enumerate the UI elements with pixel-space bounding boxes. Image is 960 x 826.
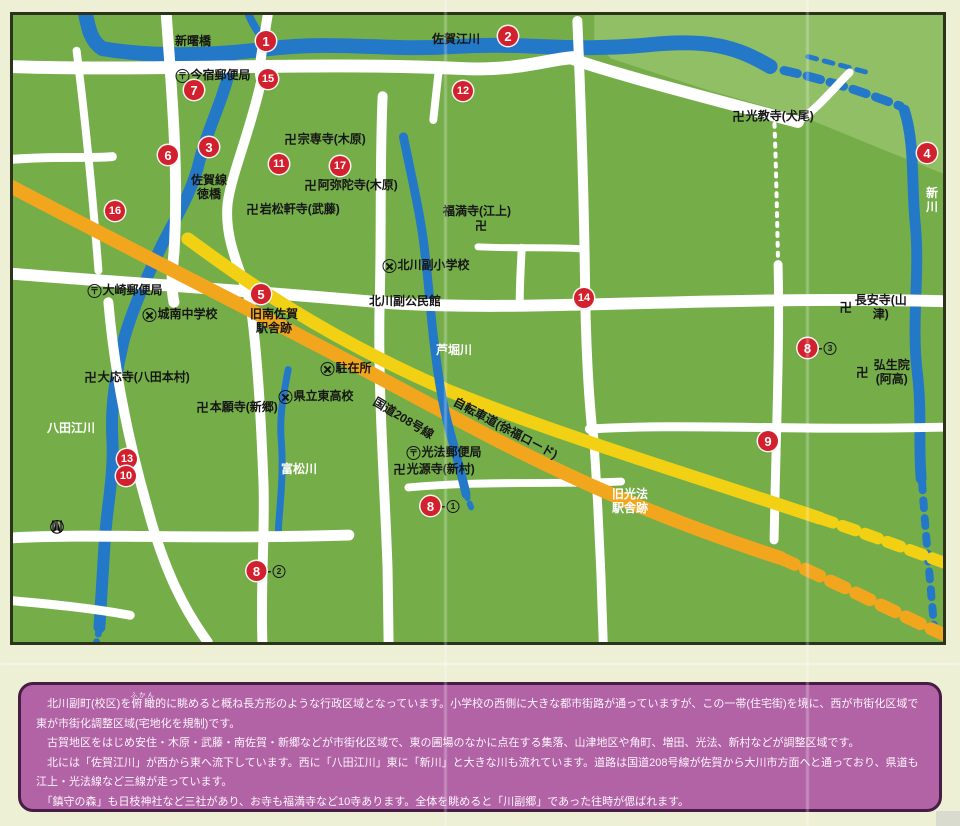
post-office-icon: 〒: [87, 284, 101, 298]
marker-suffix-number: 2: [273, 565, 286, 578]
map-label: 八田江川: [47, 422, 95, 436]
map-marker-16: 16: [105, 201, 125, 221]
map-label-text: 福満寺(江上): [443, 205, 511, 219]
marker-number: 8: [247, 561, 267, 581]
map-label-text: 県立東高校: [293, 390, 353, 404]
map-label: 〒光法郵便局: [406, 446, 481, 460]
marker-suffix-number: 1: [447, 500, 460, 513]
temple-icon: 卍: [246, 203, 259, 217]
marker-number: 8: [421, 496, 441, 516]
marker-number: 10: [116, 466, 136, 486]
map-label-text: 光教寺(犬尾): [746, 110, 814, 124]
post-office-icon: 〒: [406, 446, 420, 460]
marker-number: 3: [199, 137, 219, 157]
map-label: 城南中学校: [142, 308, 217, 322]
marker-number: 8: [798, 338, 818, 358]
map-marker-10: 10: [116, 466, 136, 486]
map-label-text: 光法郵便局: [421, 446, 481, 460]
map-label: 卍大応寺(八田本村): [84, 371, 190, 385]
marker-number: 7: [184, 80, 204, 100]
map-label-text: 旧光法 駅舎跡: [612, 488, 648, 516]
map-marker-7: 7: [184, 80, 204, 100]
map-label-text: 新曙橋: [175, 35, 211, 49]
map-label: 卍光教寺(犬尾): [732, 110, 814, 124]
paragraph-rivers-roads: 北には「佐賀江川」が西から東へ流下しています。西に「八田江川」東に「新川」と大き…: [36, 754, 924, 793]
scan-corner-artifact: [936, 811, 960, 826]
map-marker-12: 12: [453, 81, 473, 101]
paragraph-districts: 古賀地区をはじめ安住・木原・武藤・南佐賀・新郷などが市街化区域で、東の圃場のなか…: [36, 734, 924, 754]
map-label-text: 佐賀線 徳橋: [191, 174, 227, 202]
route-208-dashes: [780, 558, 943, 637]
marker-suffix: -1: [442, 499, 460, 513]
school-icon: [320, 362, 334, 376]
map-label-text: 岩松軒寺(武藤): [260, 203, 340, 217]
temple-icon: 卍: [84, 371, 97, 385]
map-label: 〒大崎郵便局: [87, 284, 162, 298]
map-label-text: 北川副公民館: [369, 295, 441, 309]
map-label-text: 城南中学校: [157, 308, 217, 322]
map-label: 旧光法 駅舎跡: [612, 488, 648, 516]
map-marker-3: 3: [199, 137, 219, 157]
map-marker-8-2: 8-2: [247, 561, 286, 581]
map-marker-1: 1: [256, 31, 276, 51]
school-icon: [382, 259, 396, 273]
compass: N: [31, 518, 83, 535]
map-label-text: 弘生院(阿高): [870, 359, 914, 387]
school-icon: [278, 390, 292, 404]
map-marker-2: 2: [498, 26, 518, 46]
page: { "map": { "colors": { "page-bg": "#eef0…: [0, 0, 960, 826]
map-label: 北川副小学校: [382, 259, 469, 273]
map-label-text: 富松川: [281, 463, 317, 477]
map-label: 富松川: [281, 463, 317, 477]
map-label-text: 大応寺(八田本村): [98, 371, 190, 385]
marker-suffix: -2: [268, 564, 286, 578]
compass-icon: [31, 518, 83, 535]
marker-number: 1: [256, 31, 276, 51]
marker-number: 14: [574, 288, 594, 308]
marker-number: 4: [917, 143, 937, 163]
marker-number: 12: [453, 81, 473, 101]
map-label: 新川: [926, 187, 938, 215]
fold-crease-horizontal: [0, 663, 960, 665]
map-marker-14: 14: [574, 288, 594, 308]
map-marker-8-3: 8-3: [798, 338, 837, 358]
map-label: 卍弘生院(阿高): [856, 359, 914, 387]
x-glyph: [385, 262, 393, 270]
map-label: 新曙橋: [175, 35, 211, 49]
map-label-text: 宗専寺(木原): [298, 133, 366, 147]
map-label: 福満寺(江上): [443, 205, 511, 219]
map-label: 県立東高校: [278, 390, 353, 404]
map-label-text: 長安寺(山津): [853, 294, 908, 322]
marker-number: 11: [269, 154, 289, 174]
map-label-text: 卍: [475, 220, 487, 234]
map-label: 卍本願寺(新郷): [196, 401, 278, 415]
map-label: 北川副公民館: [369, 295, 441, 309]
marker-number: 2: [498, 26, 518, 46]
map-label-text: 新川: [926, 187, 938, 215]
map-marker-11: 11: [269, 154, 289, 174]
marker-suffix: -3: [819, 341, 837, 355]
river-ashibori-dashes: [466, 494, 473, 512]
map-marker-6: 6: [158, 145, 178, 165]
map-label: 卍: [475, 220, 487, 234]
map-label-text: 佐賀江川: [432, 33, 480, 47]
x-glyph: [145, 311, 153, 319]
paragraph-shrines: 「鎮守の森」も日枝神社など三社があり、お寺も福満寺など10寺あります。全体を眺め…: [36, 793, 924, 813]
map-marker-5: 5: [251, 284, 271, 304]
map-label-text: 駐在所: [335, 362, 371, 376]
map-label: 卍宗専寺(木原): [284, 133, 366, 147]
marker-number: 15: [258, 69, 278, 89]
map-label-text: 北川副小学校: [397, 259, 469, 273]
temple-icon: 卍: [304, 179, 317, 193]
map-label: 旧南佐賀 駅舎跡: [250, 308, 298, 336]
paragraph-overview: 北川副町(校区)を俯瞰ふかん的に眺めると概ね長方形のような行政区域となっています…: [36, 692, 924, 734]
map-label: 芦堀川: [436, 344, 472, 358]
map-label: 卍光源寺(新村): [393, 463, 475, 477]
map-label-text: 旧南佐賀 駅舎跡: [250, 308, 298, 336]
marker-suffix-number: 3: [824, 342, 837, 355]
marker-number: 16: [105, 201, 125, 221]
map-label: 卍岩松軒寺(武藤): [246, 203, 340, 217]
marker-number: 17: [330, 156, 350, 176]
map-marker-4: 4: [917, 143, 937, 163]
map-label: 卍阿弥陀寺(木原): [304, 179, 398, 193]
map-label-text: 大崎郵便局: [102, 284, 162, 298]
x-glyph: [281, 393, 289, 401]
map-marker-9: 9: [758, 431, 778, 451]
river-hatae-dashes: [96, 629, 99, 642]
map-label: 佐賀江川: [432, 33, 480, 47]
map-marker-17: 17: [330, 156, 350, 176]
temple-icon: 卍: [393, 463, 406, 477]
map-label: 佐賀線 徳橋: [191, 174, 227, 202]
map-marker-8-1: 8-1: [421, 496, 460, 516]
temple-icon: 卍: [732, 110, 745, 124]
map-label: 駐在所: [320, 362, 371, 376]
map-marker-15: 15: [258, 69, 278, 89]
school-icon: [142, 308, 156, 322]
map-label-text: 芦堀川: [436, 344, 472, 358]
temple-icon: 卍: [284, 133, 297, 147]
marker-number: 9: [758, 431, 778, 451]
temple-icon: 卍: [196, 401, 209, 415]
description-panel: 北川副町(校区)を俯瞰ふかん的に眺めると概ね長方形のような行政区域となっています…: [18, 682, 942, 812]
town-map: N 12157123611174165148-3913108-18-2 新曙橋佐…: [10, 12, 946, 645]
temple-icon: 卍: [840, 301, 853, 315]
marker-number: 6: [158, 145, 178, 165]
map-label-text: 阿弥陀寺(木原): [318, 179, 398, 193]
marker-number: 5: [251, 284, 271, 304]
map-label-text: 八田江川: [47, 422, 95, 436]
map-label-text: 光源寺(新村): [407, 463, 475, 477]
map-label-text: 本願寺(新郷): [210, 401, 278, 415]
temple-icon: 卍: [856, 366, 869, 380]
map-label: 卍長安寺(山津): [840, 294, 909, 322]
x-glyph: [323, 365, 331, 373]
